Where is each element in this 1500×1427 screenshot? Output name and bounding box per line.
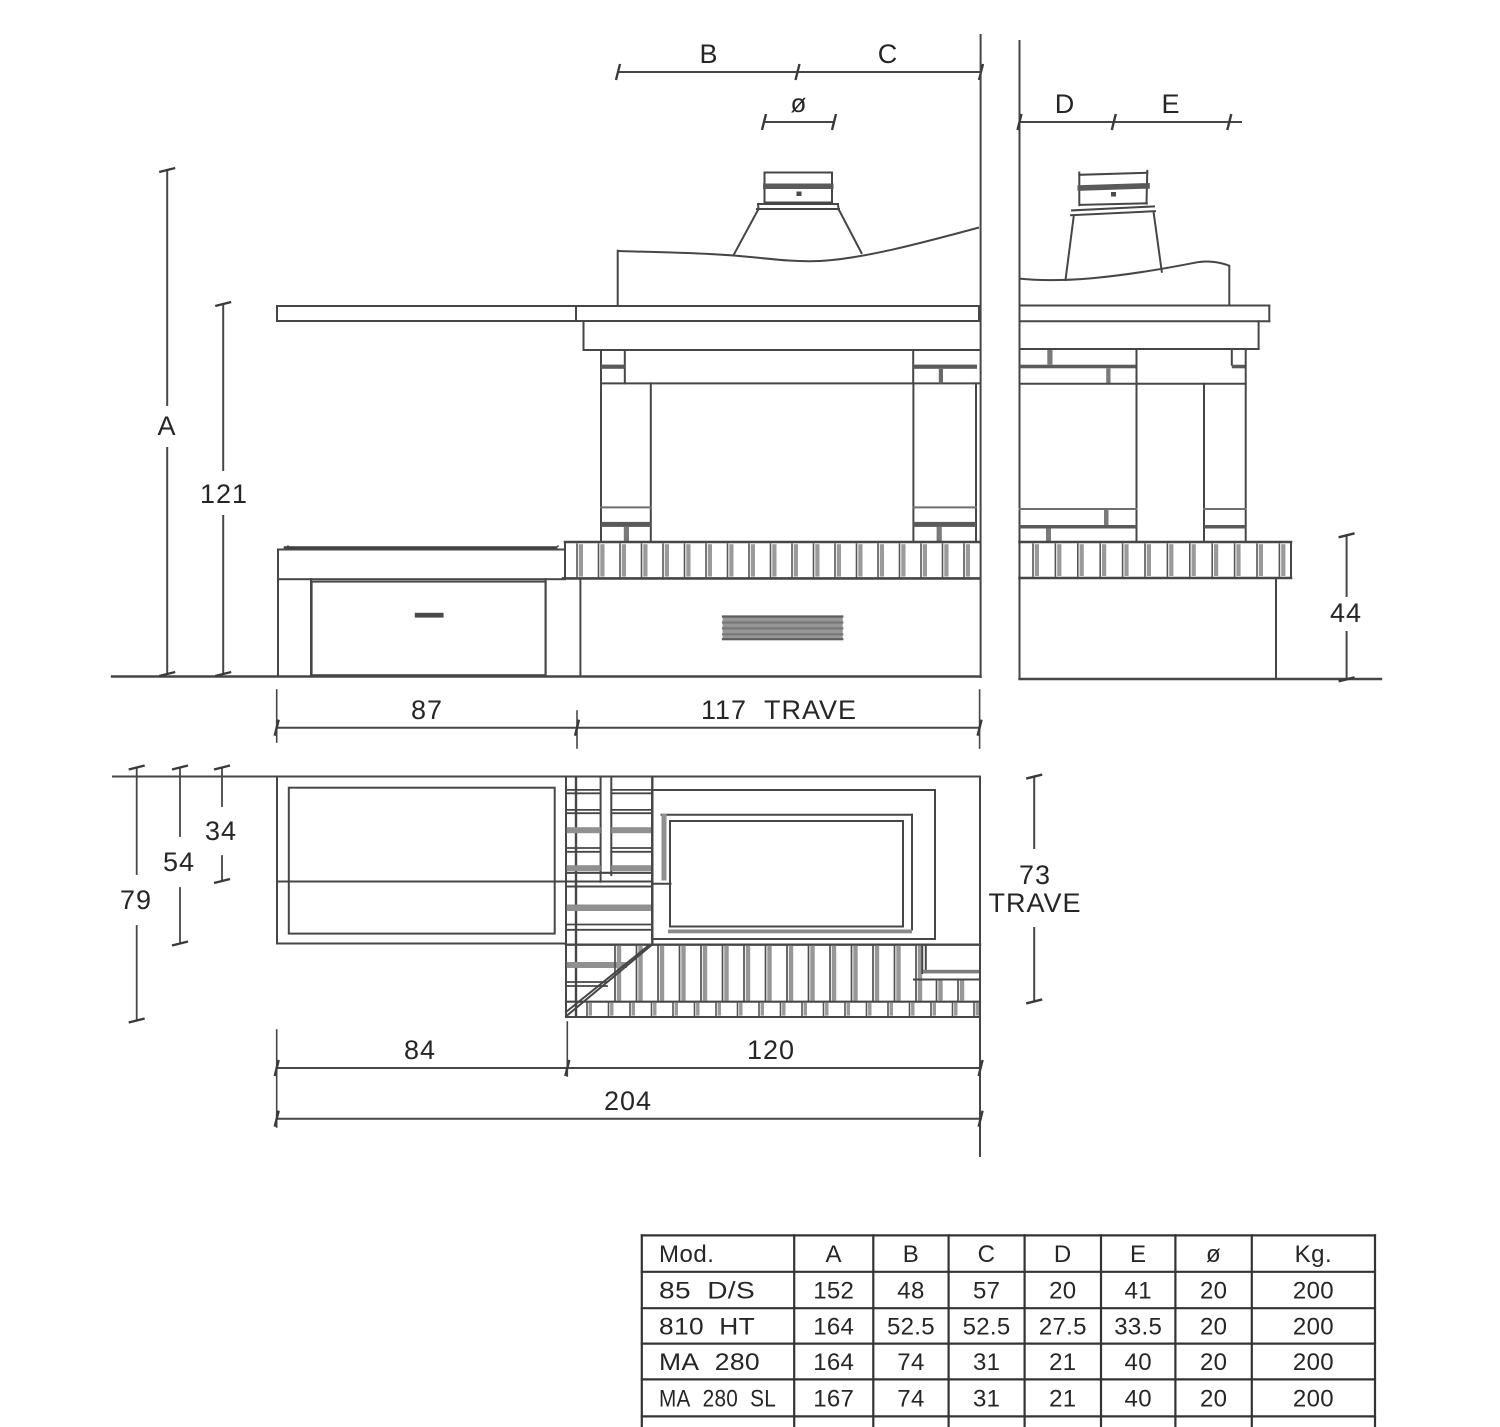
svg-text:MA 280 SL: MA 280 SL xyxy=(659,1385,776,1412)
svg-text:Mod.: Mod. xyxy=(659,1241,714,1268)
svg-text:52.5: 52.5 xyxy=(887,1313,935,1340)
svg-text:810 HT: 810 HT xyxy=(659,1313,755,1340)
svg-text:52.5: 52.5 xyxy=(963,1313,1011,1340)
svg-text:40: 40 xyxy=(1125,1349,1152,1376)
svg-text:164: 164 xyxy=(813,1349,854,1376)
svg-text:152: 152 xyxy=(813,1278,854,1305)
svg-text:34: 34 xyxy=(205,816,237,846)
svg-text:21: 21 xyxy=(1049,1349,1076,1376)
svg-text:74: 74 xyxy=(897,1385,924,1412)
svg-text:40: 40 xyxy=(1125,1385,1152,1412)
svg-text:20: 20 xyxy=(1200,1278,1227,1305)
svg-text:204: 204 xyxy=(604,1086,652,1116)
svg-text:D: D xyxy=(1054,1241,1072,1268)
svg-text:33.5: 33.5 xyxy=(1114,1313,1162,1340)
svg-text:74: 74 xyxy=(897,1349,924,1376)
svg-text:200: 200 xyxy=(1293,1349,1334,1376)
svg-text:48: 48 xyxy=(897,1278,924,1305)
svg-text:79: 79 xyxy=(120,885,152,915)
svg-text:20: 20 xyxy=(1049,1278,1076,1305)
svg-text:C: C xyxy=(878,39,899,69)
svg-text:20: 20 xyxy=(1200,1349,1227,1376)
svg-text:44: 44 xyxy=(1330,598,1362,628)
svg-text:TRAVE: TRAVE xyxy=(988,888,1081,918)
svg-text:85 D/S: 85 D/S xyxy=(659,1278,755,1305)
svg-text:200: 200 xyxy=(1293,1278,1334,1305)
svg-text:200: 200 xyxy=(1293,1313,1334,1340)
svg-text:57: 57 xyxy=(973,1278,1000,1305)
svg-text:84: 84 xyxy=(404,1035,436,1065)
svg-text:Kg.: Kg. xyxy=(1295,1241,1333,1268)
svg-text:E: E xyxy=(1161,89,1180,119)
svg-text:E: E xyxy=(1130,1241,1147,1268)
svg-text:B: B xyxy=(699,39,718,69)
svg-text:117 TRAVE: 117 TRAVE xyxy=(701,695,857,725)
svg-text:200: 200 xyxy=(1293,1385,1334,1412)
svg-text:B: B xyxy=(903,1241,920,1268)
svg-text:ø: ø xyxy=(1206,1241,1221,1268)
svg-text:54: 54 xyxy=(163,847,195,877)
svg-text:21: 21 xyxy=(1049,1385,1076,1412)
svg-text:A: A xyxy=(825,1241,842,1268)
svg-text:41: 41 xyxy=(1125,1278,1152,1305)
svg-text:167: 167 xyxy=(813,1385,854,1412)
svg-text:87: 87 xyxy=(411,695,443,725)
svg-text:31: 31 xyxy=(973,1385,1000,1412)
svg-text:31: 31 xyxy=(973,1349,1000,1376)
svg-text:120: 120 xyxy=(747,1035,795,1065)
svg-text:D: D xyxy=(1055,89,1076,119)
svg-text:164: 164 xyxy=(813,1313,854,1340)
svg-text:73: 73 xyxy=(1019,860,1051,890)
svg-text:C: C xyxy=(978,1241,996,1268)
svg-text:20: 20 xyxy=(1200,1313,1227,1340)
svg-text:ø: ø xyxy=(791,88,808,118)
svg-text:MA 280: MA 280 xyxy=(659,1349,760,1376)
svg-text:27.5: 27.5 xyxy=(1039,1313,1087,1340)
svg-text:A: A xyxy=(157,411,176,441)
svg-text:121: 121 xyxy=(200,479,248,509)
svg-text:20: 20 xyxy=(1200,1385,1227,1412)
